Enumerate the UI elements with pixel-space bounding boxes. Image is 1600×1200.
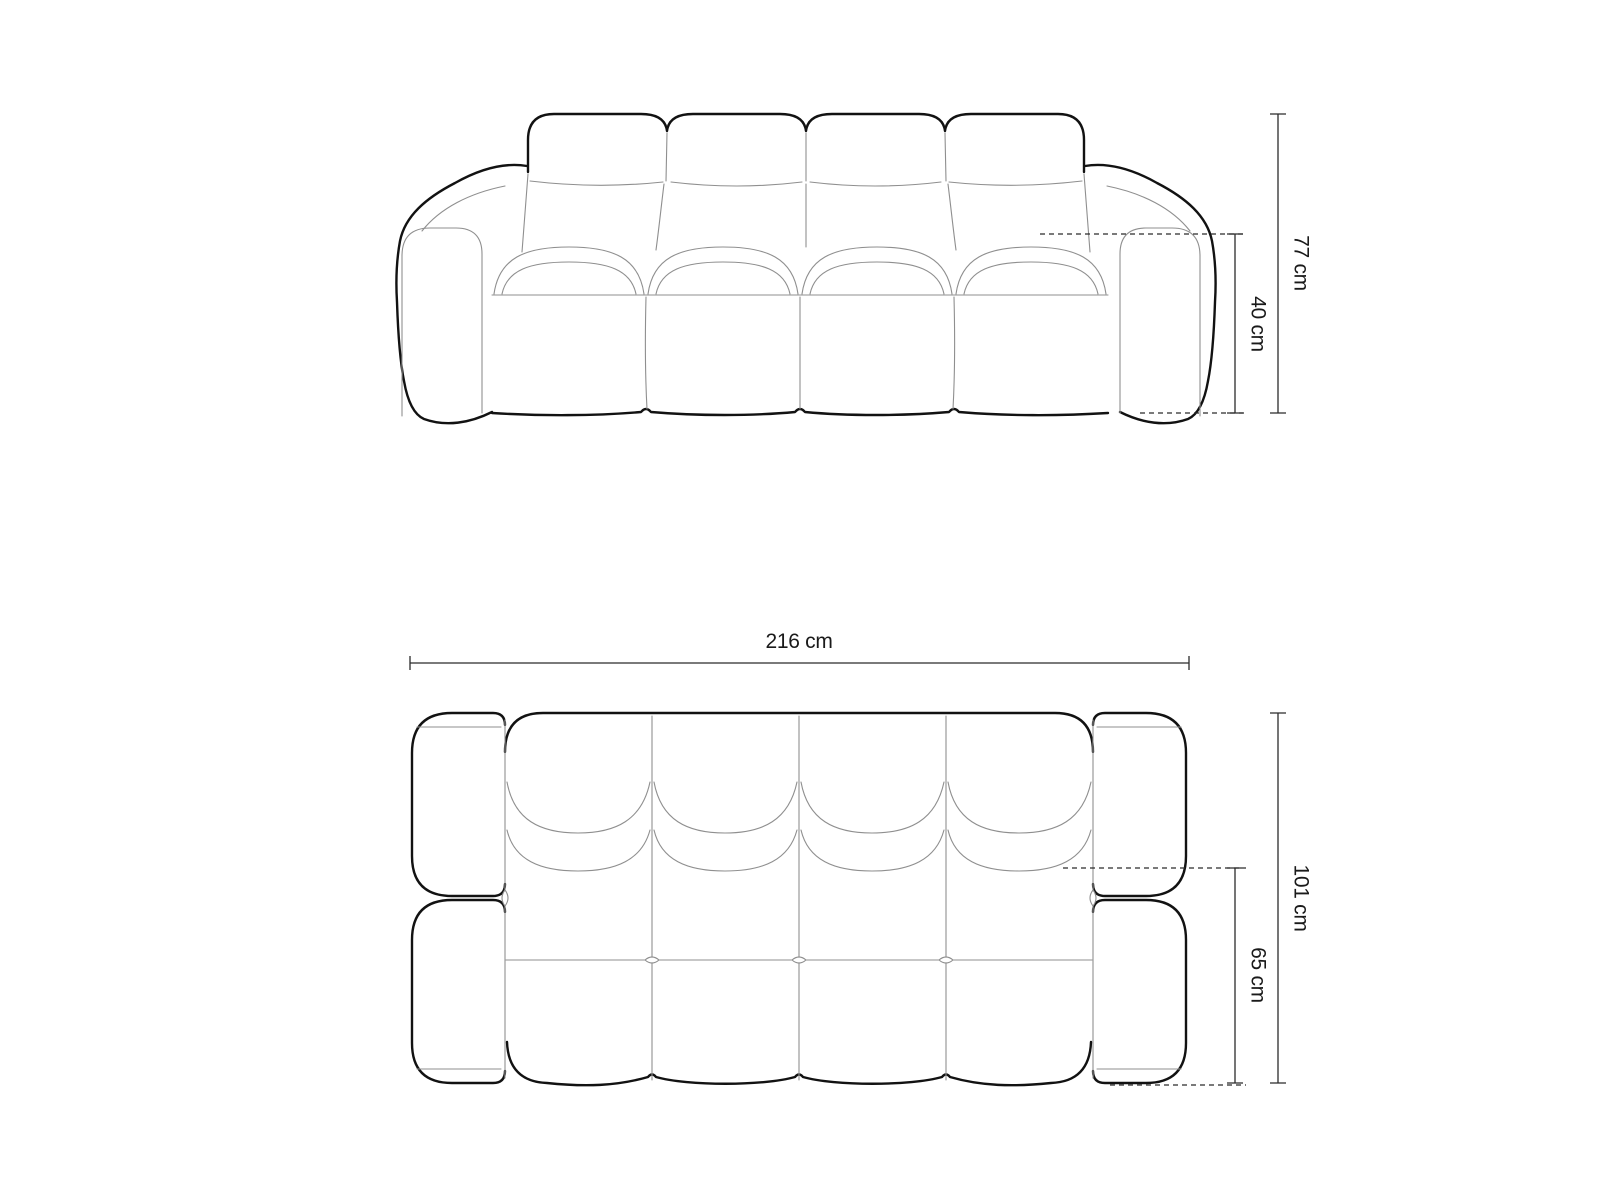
top-seat-depth-dim-line [1227,868,1243,1083]
front-view-labels: 77 cm 40 cm [1246,235,1312,352]
front-total-height-dim-line [1270,114,1286,413]
top-total-depth-dim-line [1270,713,1286,1083]
top-view-dimensions [410,656,1286,1085]
front-seat-vertical-seams [645,297,954,409]
front-left-arm-outline [396,165,527,423]
top-right-arm-front-half [1093,900,1186,1083]
top-total-width-label: 216 cm [765,630,832,653]
front-headrest-notch-seams [666,133,946,181]
front-seat-bottom-outline [492,409,1108,415]
front-seat-height-dim-line [1227,234,1243,413]
top-view: 216 cm 101 cm 65 cm [410,630,1312,1085]
front-backrest-vertical-seams [656,184,956,250]
sofa-dimension-diagram: 77 cm 40 cm [0,0,1600,1200]
top-column-seams [652,716,946,1080]
top-left-arm-front-half [412,900,505,1083]
front-view: 77 cm 40 cm [396,114,1312,423]
top-total-width-dim-line [410,656,1189,670]
front-seat-height-label: 40 cm [1246,296,1269,352]
front-right-arm-outline [1085,165,1216,423]
front-total-height-label: 77 cm [1289,235,1312,291]
front-seat-arches-outer [494,247,1106,294]
front-seat-arches-inner [502,262,1098,294]
front-view-seams [402,133,1200,416]
front-left-arm-panel [402,228,482,416]
top-total-depth-label: 101 cm [1289,864,1312,931]
top-left-arm-back-half [412,713,505,896]
front-right-arm-panel [1120,228,1200,416]
diagram-canvas: 77 cm 40 cm [0,0,1600,1200]
front-view-dimensions [1040,114,1286,413]
top-view-seams [417,716,1181,1080]
top-view-labels: 216 cm 101 cm 65 cm [765,630,1312,1003]
top-seat-depth-label: 65 cm [1246,947,1269,1003]
